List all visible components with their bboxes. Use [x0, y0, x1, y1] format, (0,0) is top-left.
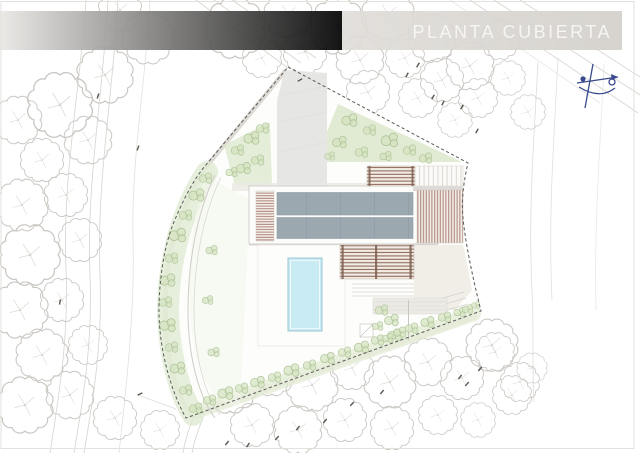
drawing-sheet: PLANTA CUBIERTA [0, 0, 640, 453]
louver-deck-right [417, 190, 463, 243]
roof-panel-lower [277, 218, 413, 239]
skylight-marker [360, 324, 373, 337]
swimming-pool [288, 258, 322, 331]
sheet-title: PLANTA CUBIERTA [412, 22, 612, 42]
pergola-post [410, 245, 412, 279]
louver-strip-left [256, 191, 274, 241]
pergola-post [412, 166, 414, 186]
deck-striped [415, 166, 463, 186]
roof-panel-upper [277, 193, 413, 216]
pergola-post [375, 245, 377, 279]
pergola-post [369, 166, 371, 186]
title-band: PLANTA CUBIERTA [0, 11, 622, 50]
driveway [277, 70, 327, 189]
main-building [249, 186, 438, 246]
pergola-post [342, 245, 344, 279]
pergola-top [367, 166, 415, 186]
site-plan-canvas: PLANTA CUBIERTA [0, 0, 640, 453]
